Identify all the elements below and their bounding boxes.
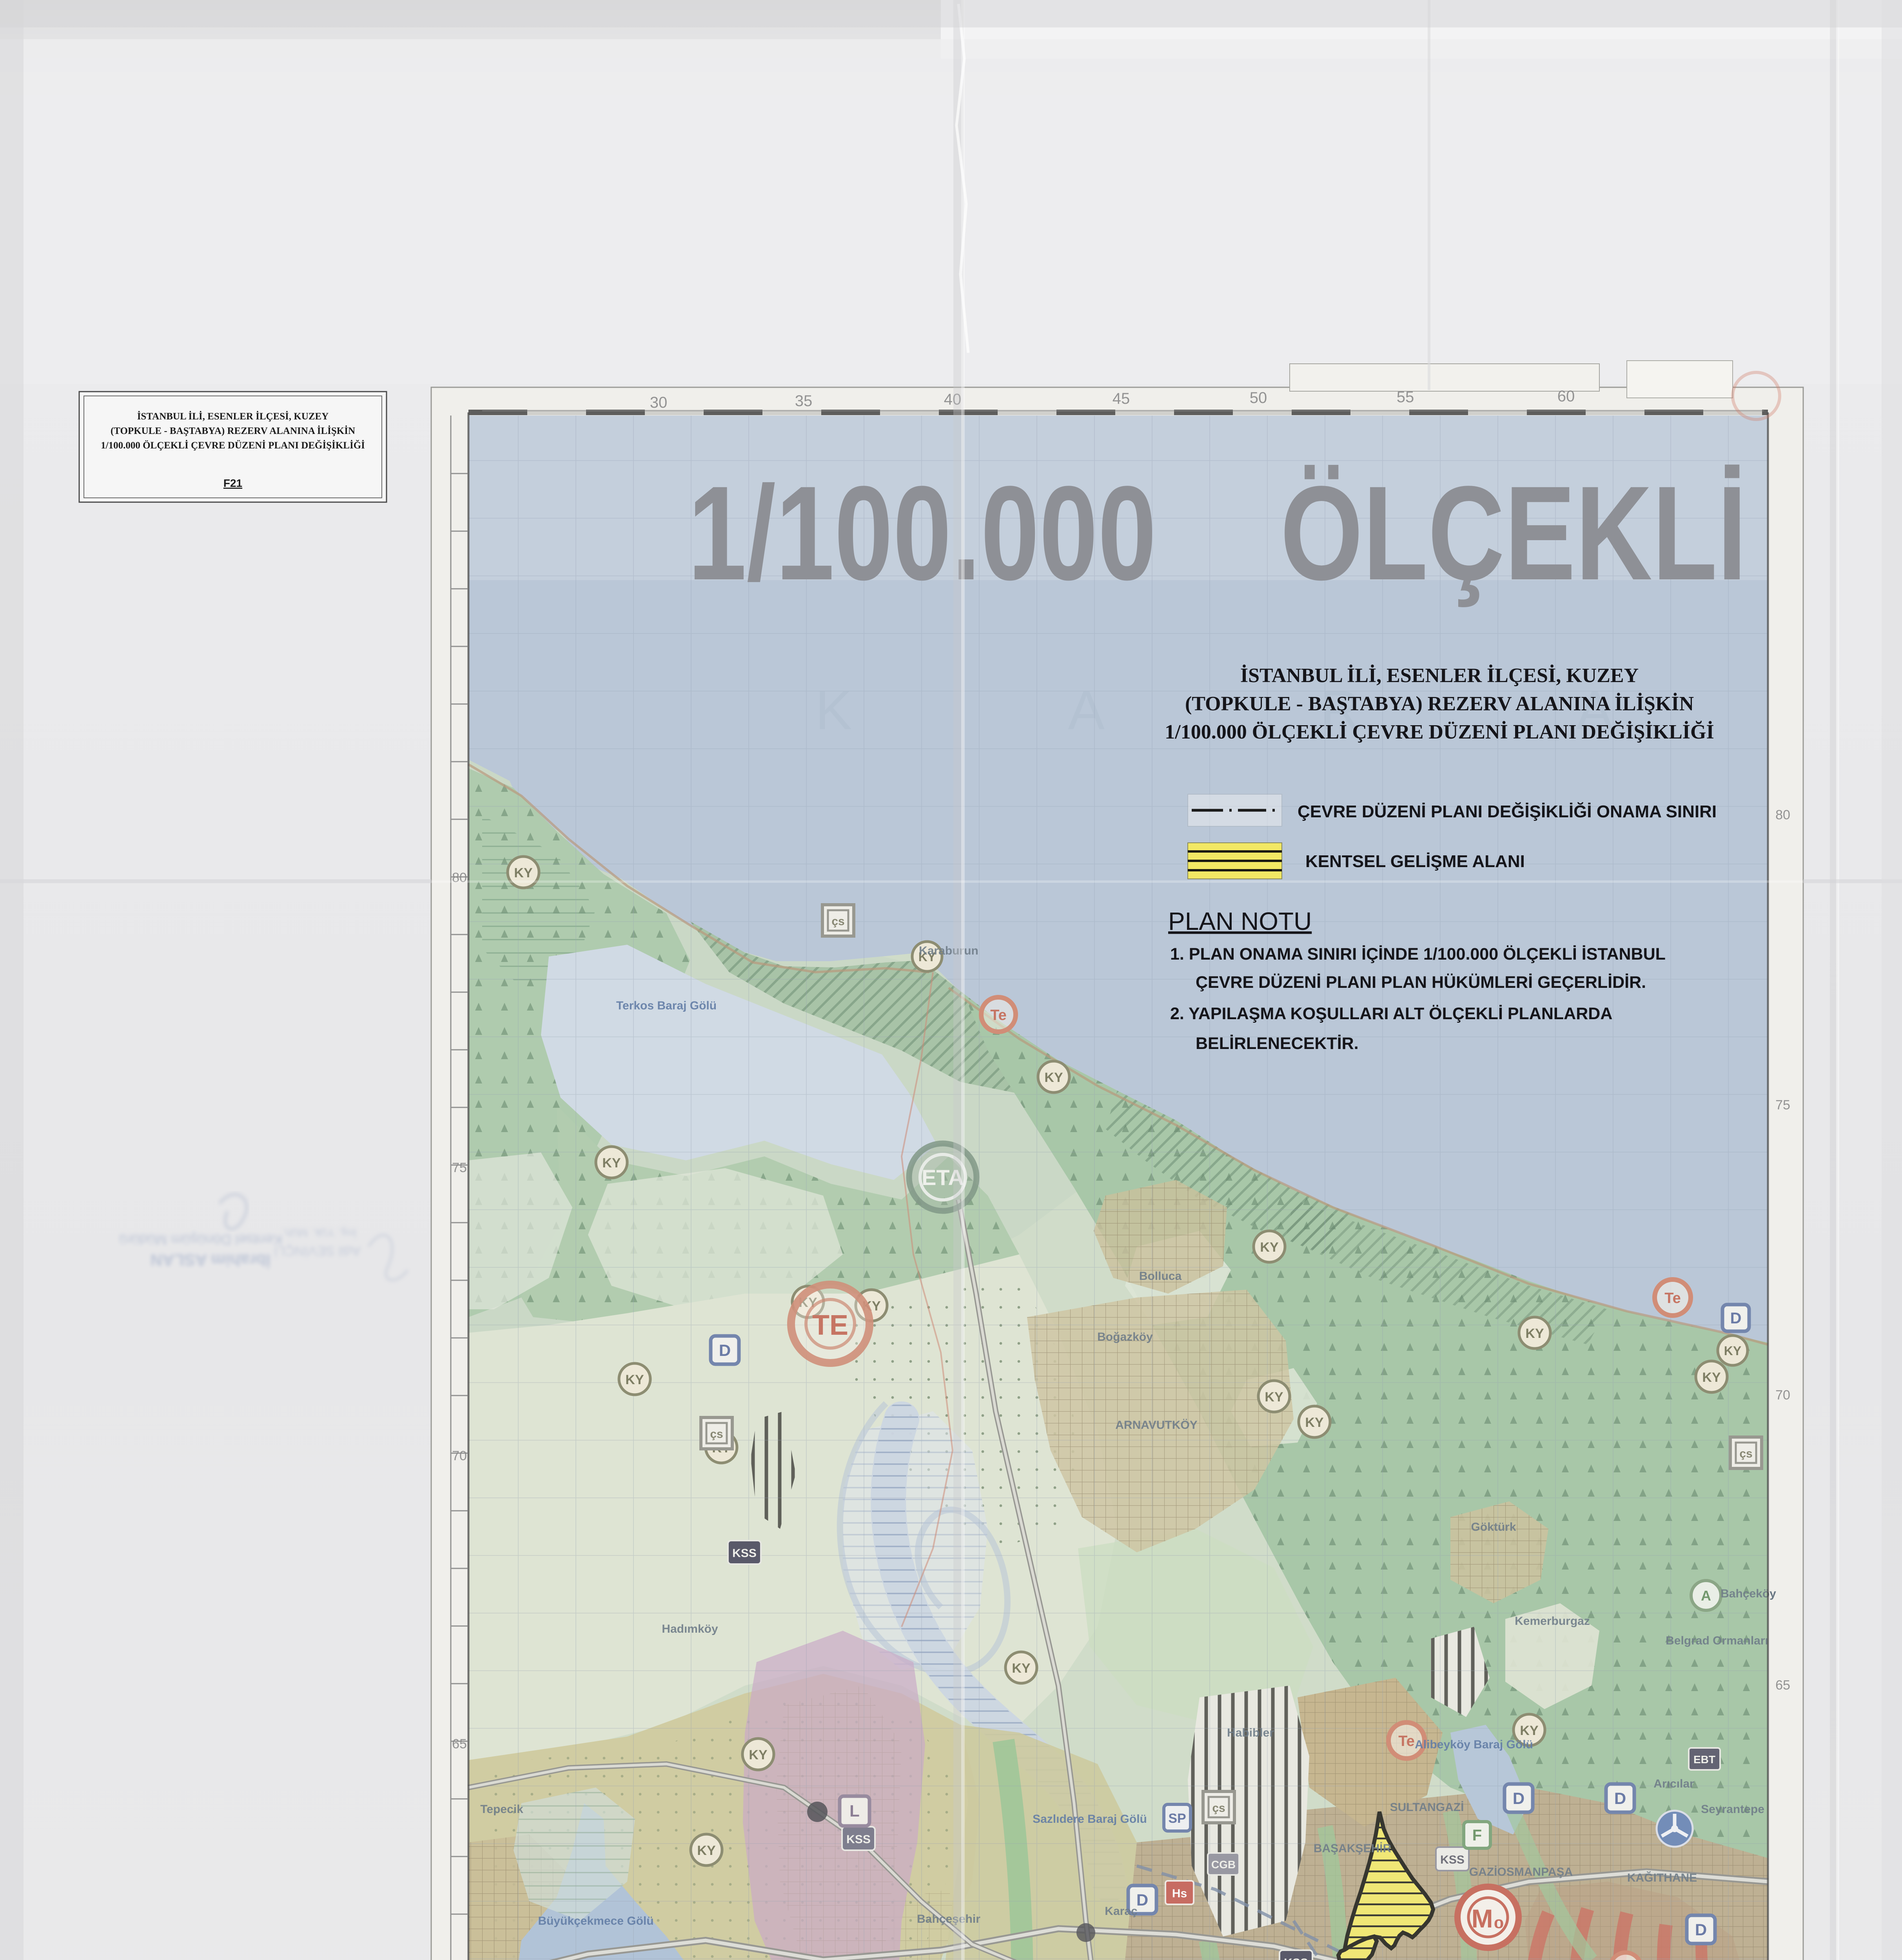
svg-text:70: 70 bbox=[452, 1448, 467, 1463]
svg-text:55: 55 bbox=[1397, 388, 1414, 406]
svg-text:75: 75 bbox=[452, 1160, 467, 1175]
svg-text:60: 60 bbox=[1557, 388, 1575, 405]
svg-text:İbrahim ASLAN: İbrahim ASLAN bbox=[151, 1251, 270, 1269]
svg-text:F21: F21 bbox=[223, 477, 242, 489]
svg-text:KENTSEL GELİŞME ALANI: KENTSEL GELİŞME ALANI bbox=[1305, 852, 1525, 871]
svg-text:75: 75 bbox=[1775, 1098, 1790, 1112]
svg-text:İnş. Yük. Müh.: İnş. Yük. Müh. bbox=[282, 1226, 357, 1239]
svg-text:30: 30 bbox=[650, 394, 668, 411]
svg-text:45: 45 bbox=[1113, 390, 1130, 407]
svg-text:PLAN NOTU: PLAN NOTU bbox=[1168, 907, 1312, 935]
svg-text:(TOPKULE - BAŞTABYA) REZERV AL: (TOPKULE - BAŞTABYA) REZERV ALANINA İLİŞ… bbox=[111, 425, 355, 436]
svg-text:1/100.000 ÖLÇEKLİ ÇEVRE DÜZENİ: 1/100.000 ÖLÇEKLİ ÇEVRE DÜZENİ PLANI DEĞ… bbox=[1165, 720, 1714, 743]
svg-text:BELİRLENECEKTİR.: BELİRLENECEKTİR. bbox=[1196, 1034, 1359, 1053]
svg-text:ÇEVRE DÜZENİ PLANI PLAN HÜKÜML: ÇEVRE DÜZENİ PLANI PLAN HÜKÜMLERİ GEÇERL… bbox=[1196, 973, 1646, 992]
svg-text:80: 80 bbox=[452, 870, 467, 885]
svg-text:İSTANBUL İLİ, ESENLER İLÇESİ,: İSTANBUL İLİ, ESENLER İLÇESİ, KUZEY bbox=[1240, 664, 1639, 687]
svg-text:65: 65 bbox=[452, 1737, 467, 1751]
svg-text:Adil SEVİNÇLİ: Adil SEVİNÇLİ bbox=[274, 1243, 361, 1258]
svg-text:2. YAPILAŞMA KOŞULLARI ALT ÖLÇ: 2. YAPILAŞMA KOŞULLARI ALT ÖLÇEKLİ PLANL… bbox=[1170, 1004, 1612, 1023]
svg-text:İSTANBUL İLİ, ESENLER İLÇESİ,: İSTANBUL İLİ, ESENLER İLÇESİ, KUZEY bbox=[137, 411, 329, 422]
svg-text:(TOPKULE - BAŞTABYA) REZERV AL: (TOPKULE - BAŞTABYA) REZERV ALANINA İLİŞ… bbox=[1185, 693, 1694, 715]
svg-text:70: 70 bbox=[1775, 1388, 1790, 1403]
svg-text:35: 35 bbox=[795, 392, 813, 410]
svg-text:80: 80 bbox=[1775, 808, 1790, 822]
svg-text:ÖLÇEKLİ: ÖLÇEKLİ bbox=[1280, 458, 1747, 609]
svg-text:ÇEVRE DÜZENİ PLANI DEĞİŞİKLİĞİ: ÇEVRE DÜZENİ PLANI DEĞİŞİKLİĞİ ONAMA SIN… bbox=[1298, 802, 1717, 821]
svg-text:Kentsel Dönüşüm Müdürü: Kentsel Dönüşüm Müdürü bbox=[119, 1232, 282, 1248]
svg-text:1/100.000 ÖLÇEKLİ ÇEVRE DÜZENİ: 1/100.000 ÖLÇEKLİ ÇEVRE DÜZENİ PLANI DEĞ… bbox=[101, 439, 365, 451]
svg-text:65: 65 bbox=[1775, 1678, 1790, 1693]
svg-text:1/100.000: 1/100.000 bbox=[688, 458, 1156, 608]
svg-text:1. PLAN ONAMA SINIRI İÇİNDE 1/: 1. PLAN ONAMA SINIRI İÇİNDE 1/100.000 ÖL… bbox=[1170, 945, 1666, 964]
svg-text:50: 50 bbox=[1250, 389, 1267, 407]
